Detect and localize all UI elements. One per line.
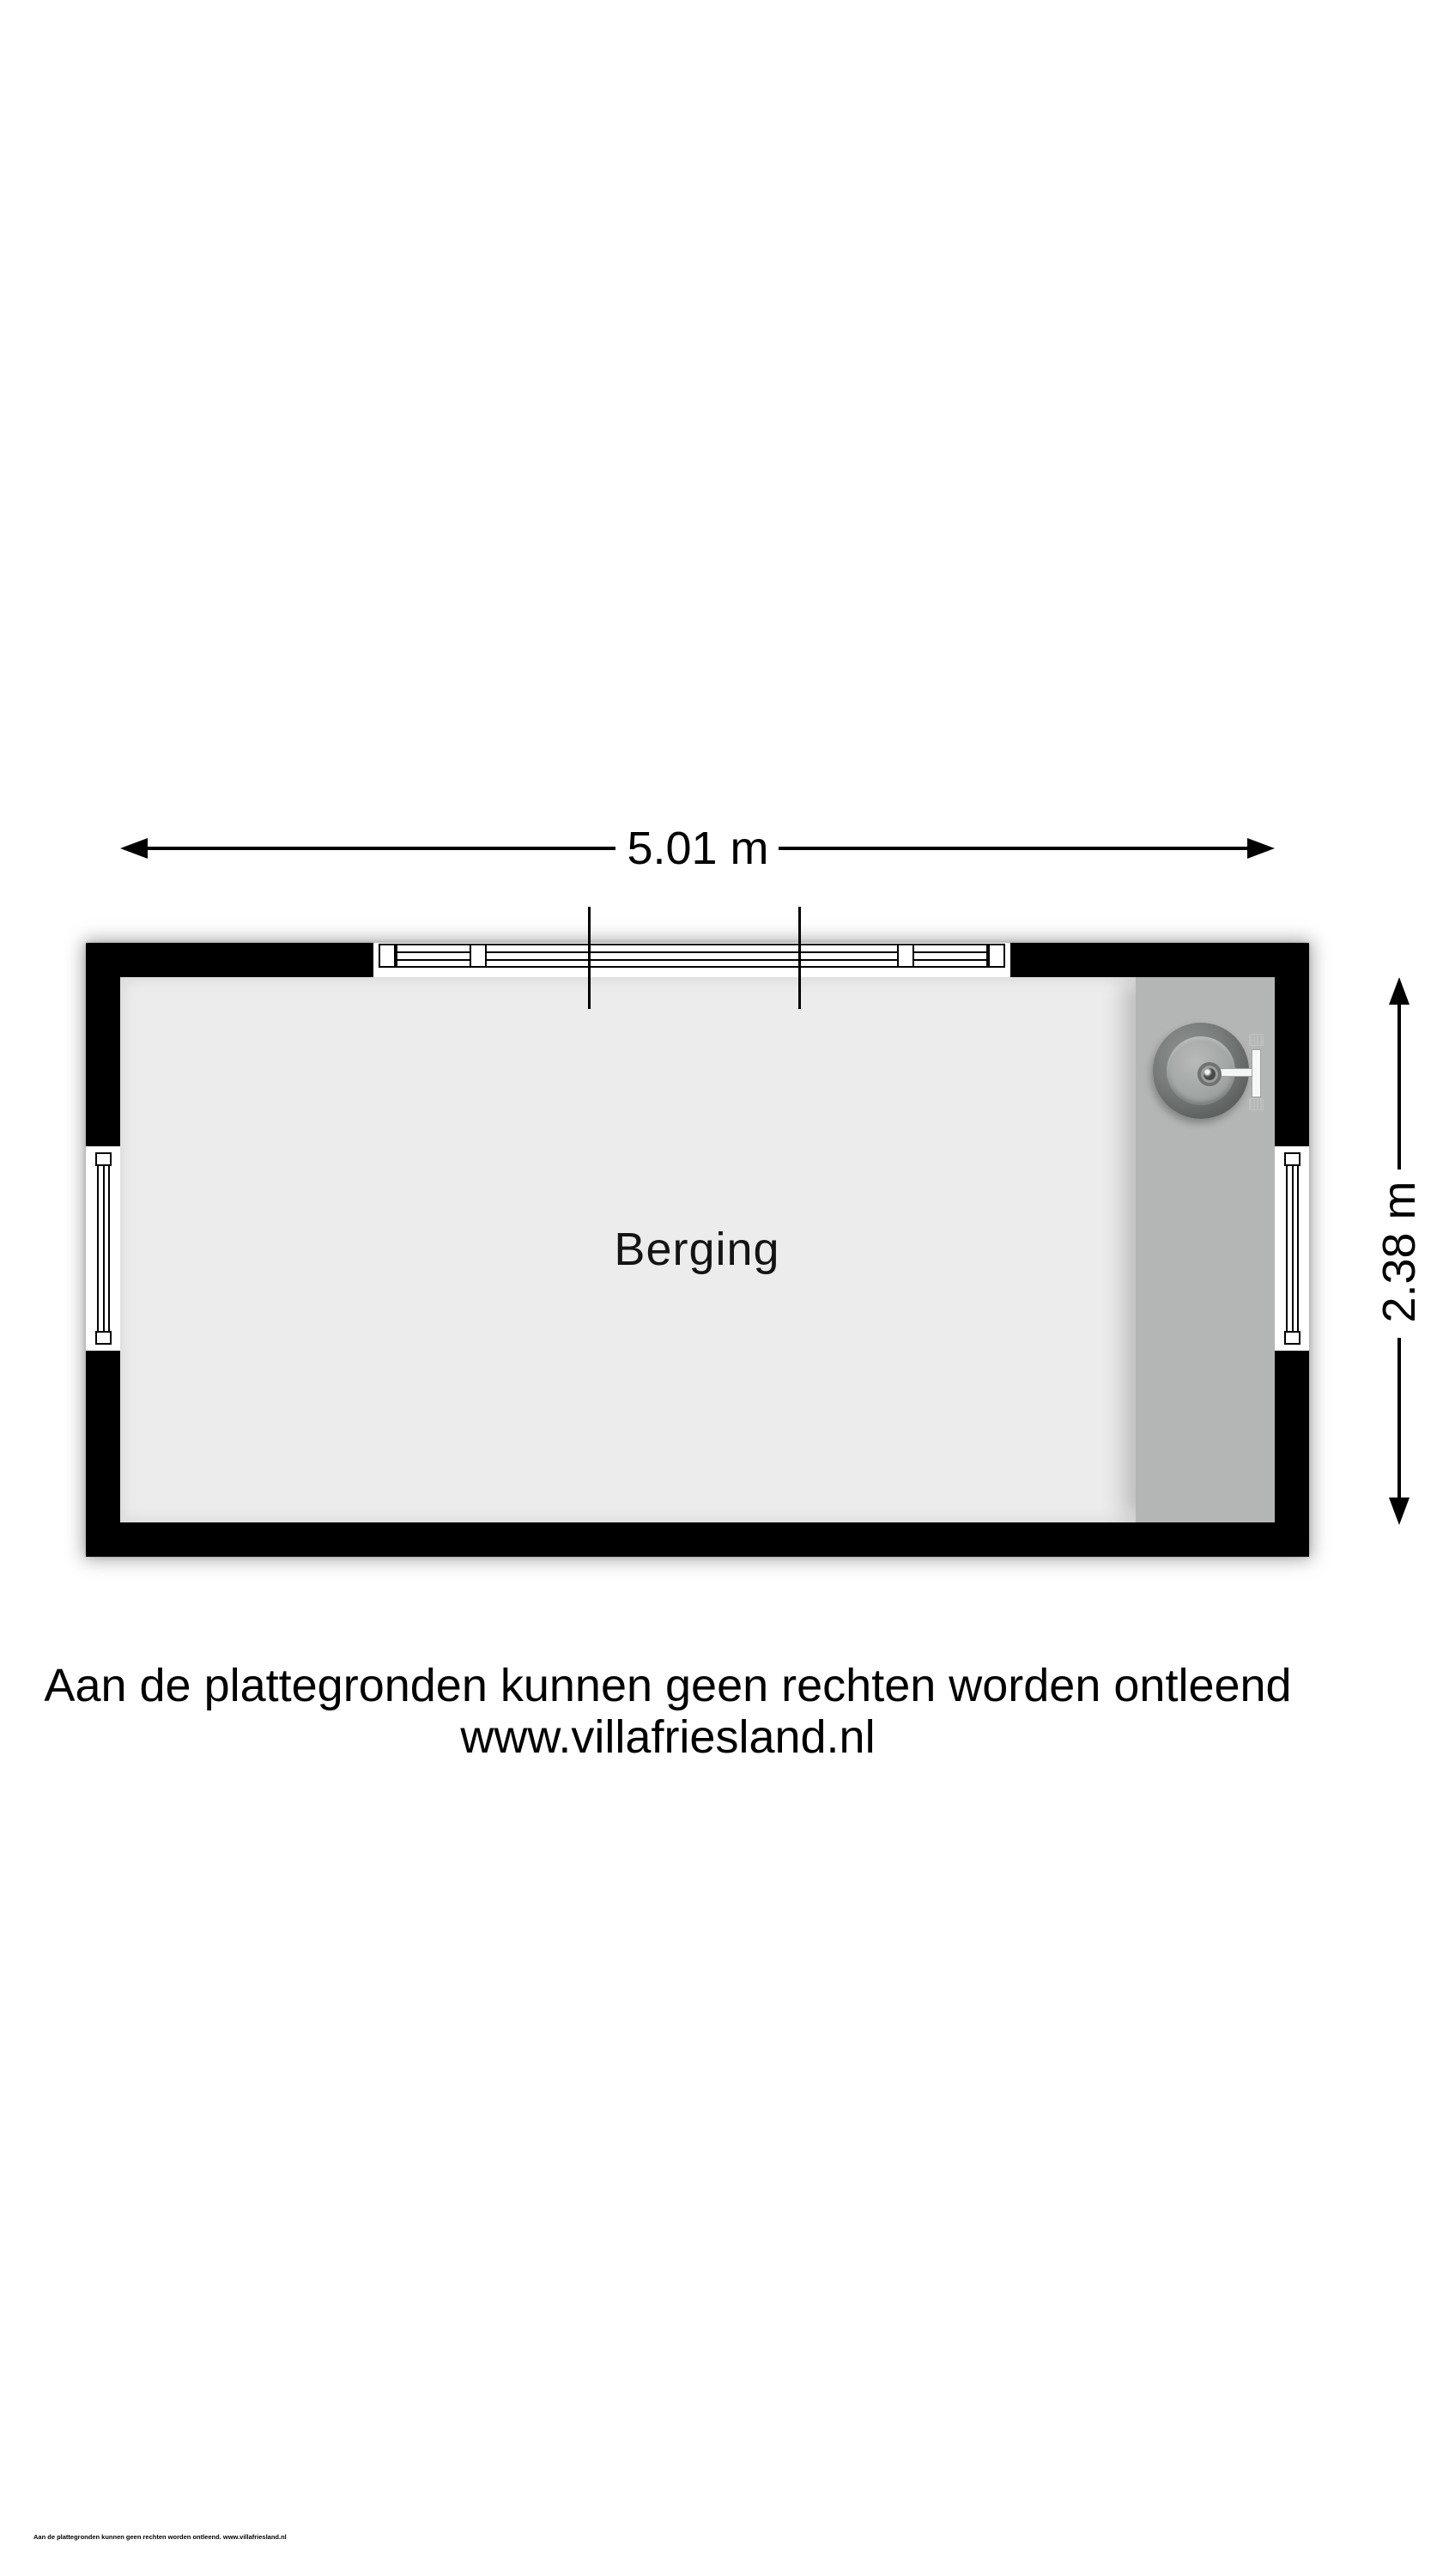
window-glazing bbox=[97, 1164, 110, 1333]
sink-drain-dot bbox=[1203, 1068, 1216, 1080]
window-end-cap bbox=[988, 944, 1005, 968]
window-end-cap bbox=[1284, 1152, 1300, 1166]
footnote-text: Aan de plattegronden kunnen geen rechten… bbox=[33, 2533, 287, 2541]
faucet-spout bbox=[1220, 1068, 1256, 1077]
disclaimer-line1: Aan de plattegronden kunnen geen rechten… bbox=[0, 1660, 1336, 1711]
floorplan-page: 5.01 m bbox=[0, 0, 1449, 2576]
disclaimer-line2: www.villafriesland.nl bbox=[0, 1711, 1336, 1763]
room-label: Berging bbox=[614, 1223, 779, 1276]
height-dimension-line bbox=[1397, 1001, 1401, 1170]
window-glazing-line bbox=[1292, 1166, 1294, 1331]
right-arrowhead-icon bbox=[1247, 838, 1275, 859]
window-glazing-line bbox=[103, 1166, 105, 1331]
valve-mark bbox=[1249, 1034, 1264, 1046]
up-arrowhead-icon bbox=[1389, 977, 1410, 1005]
width-dimension-label: 5.01 m bbox=[627, 825, 768, 872]
left-arrowhead-icon bbox=[120, 838, 148, 859]
faucet-handle bbox=[1252, 1049, 1261, 1097]
window-mullion bbox=[897, 944, 914, 968]
window-mullion bbox=[470, 944, 487, 968]
down-arrowhead-icon bbox=[1389, 1498, 1410, 1525]
dimension-tick bbox=[798, 907, 801, 1009]
sink-icon bbox=[1153, 1023, 1249, 1119]
window-end-cap bbox=[95, 1331, 112, 1345]
window-end-cap bbox=[95, 1152, 112, 1166]
valve-mark bbox=[1249, 1098, 1264, 1110]
right-window bbox=[1275, 1146, 1309, 1351]
disclaimer: Aan de plattegronden kunnen geen rechten… bbox=[0, 1660, 1336, 1763]
top-window bbox=[373, 943, 1010, 977]
window-end-cap bbox=[379, 944, 396, 968]
height-dimension-line bbox=[1397, 1338, 1401, 1501]
width-dimension-line bbox=[144, 847, 615, 850]
left-window bbox=[86, 1146, 120, 1351]
window-glazing bbox=[1286, 1164, 1299, 1333]
width-dimension-line bbox=[779, 847, 1251, 850]
window-end-cap bbox=[1284, 1331, 1300, 1345]
dimension-tick bbox=[588, 907, 591, 1009]
height-dimension-label: 2.38 m bbox=[1376, 1181, 1422, 1322]
